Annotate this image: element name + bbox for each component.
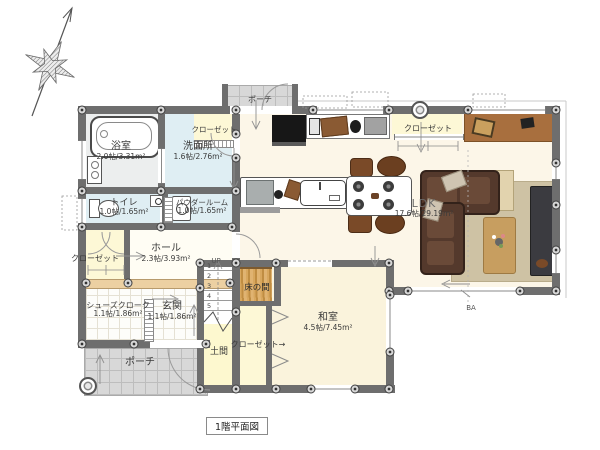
label-powder: パウダールーム 1.0帖/1.65m² (176, 199, 228, 215)
wall-bolt (307, 385, 316, 394)
wall-stairs-west (197, 260, 204, 393)
window-toilet-left (78, 198, 86, 224)
wall-bolt (196, 385, 205, 394)
wall-bolt (82, 279, 91, 288)
label-entrance: 玄関 1.1帖/1.86m² (148, 302, 197, 320)
wall-bolt (385, 259, 394, 268)
washitsu-size: 4.5帖/7.45m² (304, 324, 353, 332)
wall-bolt (232, 308, 241, 317)
wall-bolt (385, 106, 394, 115)
slider-closet-ldk (394, 134, 464, 140)
wall-bottom-center (197, 385, 395, 393)
window-desk-top (470, 106, 546, 114)
porch-top-text: ポーチ (248, 95, 272, 104)
wall-bolt (232, 259, 241, 268)
study-counter (464, 112, 554, 142)
up-text: UP (211, 257, 220, 265)
compass-north-icon (26, 8, 75, 116)
closet-ldk-text: クローゼット (404, 124, 452, 133)
ldk-size: 17.6帖/29.19m² (395, 210, 454, 218)
closet-washroom-text: クローゼット (192, 125, 237, 134)
closet-washitsu-arrow: → (279, 340, 286, 349)
label-shoes-cloak: シューズクローク 1.1帖/1.86m² (86, 302, 150, 318)
wall-bolt (226, 279, 235, 288)
sewing-machine (520, 117, 534, 129)
label-ldk: LDK 17.6帖/29.19m² (395, 198, 454, 217)
window-washitsu-bottom (311, 385, 355, 393)
label-bath: 浴室 2.0帖/3.31m² (97, 142, 146, 160)
wall-bolt (386, 291, 395, 300)
stair-number: 3 (207, 282, 211, 290)
flower (492, 235, 496, 239)
wall-bolt (228, 223, 237, 232)
wall-tokonoma-east (274, 262, 281, 306)
label-tokonoma: 床の間 (244, 277, 270, 294)
wall-hall-entrance (86, 279, 234, 289)
place-setting (383, 199, 394, 210)
wall-bolt (464, 106, 473, 115)
wall-bolt (552, 159, 561, 168)
stair-step (204, 300, 232, 301)
bath-size: 2.0帖/3.31m² (97, 153, 146, 161)
wall-porch-top-left (222, 84, 228, 109)
wall-bolt (232, 106, 241, 115)
porch-bottom-text: ポーチ (125, 357, 155, 368)
wall-bolt (552, 287, 561, 296)
label-ba: BA (466, 297, 476, 314)
flower (499, 244, 503, 248)
refrigerator (272, 115, 306, 146)
wall-bolt (157, 223, 166, 232)
label-closet-ldk: クローゼット (404, 118, 452, 135)
closet-hall-text: クローゼット (71, 254, 119, 263)
wall-bolt (385, 385, 394, 394)
plan-caption: 1階平面図 (206, 417, 268, 435)
coffee-table (483, 217, 516, 274)
toaster (309, 118, 320, 135)
piano-stool (536, 259, 548, 268)
label-closet-hall: クローゼット (71, 248, 119, 265)
washroom-name: 洗面所 (174, 142, 223, 153)
wall-bolt (157, 187, 166, 196)
window-bath-left (78, 140, 86, 180)
slider-powder-door (164, 197, 173, 223)
label-up: UP (211, 250, 220, 267)
label-doma: 土間 (210, 341, 228, 358)
round-post (79, 377, 97, 395)
label-hall: ホール 2.3帖/3.93m² (142, 244, 191, 262)
round-post (411, 101, 429, 119)
wall-bolt (78, 187, 87, 196)
wall-closet-hall-stub (124, 230, 130, 279)
shoes-size: 1.1帖/1.86m² (86, 310, 150, 318)
faucet (319, 182, 321, 190)
dining-chair (350, 158, 373, 177)
dining-chair (348, 213, 372, 233)
wall-bolt (232, 385, 241, 394)
slider-bath-door (158, 148, 165, 184)
wall-bolt (157, 106, 166, 115)
place-setting (353, 199, 364, 210)
wall-bolt (351, 385, 360, 394)
stair-step (204, 310, 232, 311)
wall-bolt (552, 201, 561, 210)
wall-bolt (196, 284, 205, 293)
microwave (320, 116, 349, 138)
powder-sink-bowl (155, 198, 162, 205)
bath-washer-dial2 (91, 171, 99, 179)
wall-bolt (124, 279, 133, 288)
hall-size: 2.3帖/3.93m² (142, 255, 191, 263)
label-closet-washitsu: クローゼット→ (231, 334, 286, 351)
label-porch-top: ポーチ (248, 89, 272, 106)
wall-bolt (404, 287, 413, 296)
window-kitchen-top (316, 106, 384, 114)
kitchen-toe-kick (240, 207, 280, 213)
wall-bolt (309, 106, 318, 115)
wall-bolt (552, 106, 561, 115)
entrance-name: 玄関 (148, 302, 197, 313)
sink-drain (329, 195, 340, 201)
washroom-size: 1.6帖/2.76m² (174, 153, 223, 161)
wall-closet-washitsu-top (236, 301, 280, 306)
sofa-cushion (427, 241, 454, 265)
wall-bolt (232, 154, 241, 163)
label-toilet: トイレ 1.0帖/1.65m² (100, 199, 149, 216)
closet-washitsu-text: クローゼット (231, 340, 279, 349)
tokonoma-text: 床の間 (244, 283, 270, 293)
wall-bolt (130, 340, 139, 349)
wall-bolt (232, 187, 241, 196)
stair-step (204, 290, 232, 291)
stair-number: 2 (207, 272, 211, 280)
flower (501, 234, 505, 238)
wall-bolt (272, 385, 281, 394)
bathtub-drain (100, 130, 108, 138)
powder-size: 1.0帖/1.65m² (176, 207, 228, 215)
stair-number: 4 (207, 292, 211, 300)
label-porch-bottom: ポーチ (125, 352, 155, 369)
place-setting (383, 181, 394, 192)
doma-text: 土間 (210, 347, 228, 357)
wall-bolt (386, 348, 395, 357)
dining-chair (377, 156, 406, 177)
stair-number: 5 (207, 302, 211, 310)
bath-washer-dial (91, 161, 99, 169)
window-ldk-bottom (410, 287, 520, 295)
washitsu-name: 和室 (304, 313, 353, 324)
opening-hall-door (232, 232, 240, 258)
label-closet-washroom: クローゼット (192, 119, 237, 136)
wall-bolt (552, 246, 561, 255)
wall-porch-top-right (292, 84, 298, 109)
wall-bolt (272, 259, 281, 268)
pot (274, 190, 283, 199)
wall-bolt (516, 287, 525, 296)
label-washroom: 洗面所 1.6帖/2.76m² (174, 142, 223, 160)
wall-bolt (196, 259, 205, 268)
ldk-name: LDK (395, 198, 454, 210)
stair-step (204, 270, 232, 271)
opening-washitsu-north (288, 260, 332, 267)
hall-name: ホール (142, 244, 191, 255)
photo-frame (471, 117, 495, 138)
rice-cooker (364, 117, 387, 135)
wall-bolt (78, 340, 87, 349)
kitchen-sink (300, 180, 346, 206)
slider-washitsu-east (386, 296, 394, 354)
opening-entrance-door (150, 340, 208, 348)
wall-bolt (78, 223, 87, 232)
cooktop (246, 180, 274, 205)
ba-text: BA (466, 304, 476, 312)
wall-bolt (78, 106, 87, 115)
toilet-size: 1.0帖/1.65m² (100, 208, 149, 216)
label-washitsu: 和室 4.5帖/7.45m² (304, 313, 353, 331)
table-centerpiece (371, 193, 379, 199)
kettle (350, 120, 361, 133)
entrance-size: 1.1帖/1.86m² (148, 313, 197, 321)
floorplan-canvas: 1 2 3 4 5 ポーチ 浴室 2.0帖/3.31m² 洗面所 1.6帖/2.… (0, 0, 600, 450)
place-setting (353, 181, 364, 192)
bath-name: 浴室 (97, 142, 146, 153)
